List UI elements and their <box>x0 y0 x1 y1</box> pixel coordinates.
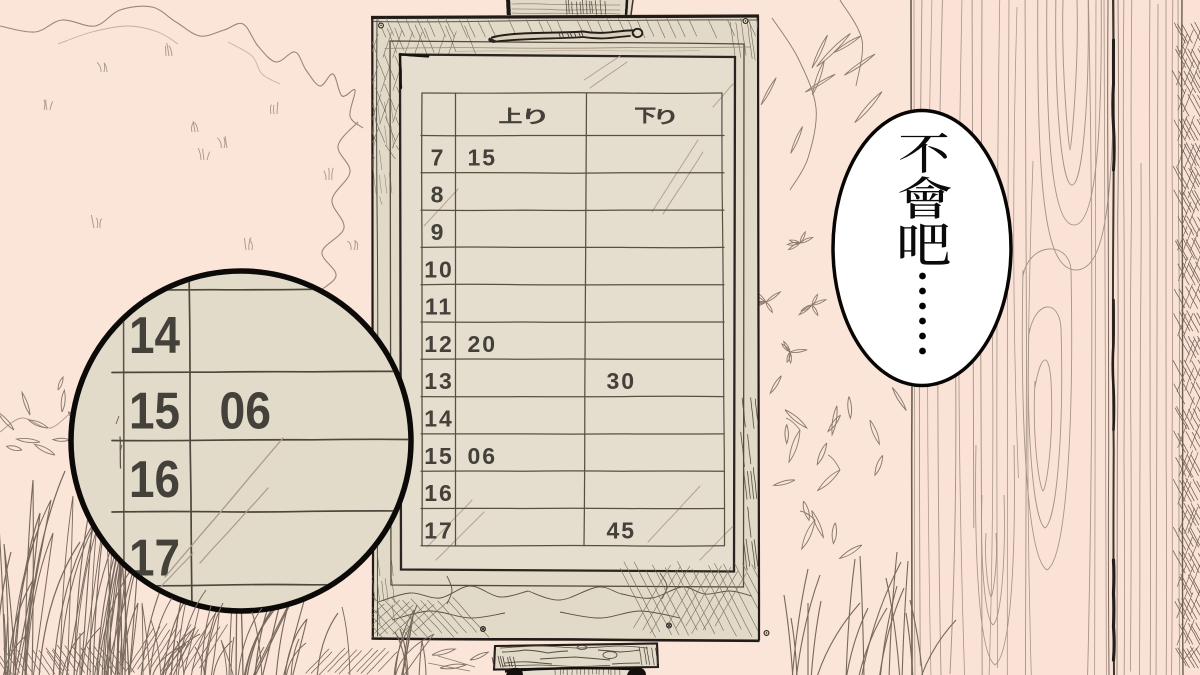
svg-text:12: 12 <box>424 331 454 357</box>
svg-text:14: 14 <box>424 406 454 432</box>
svg-text:17: 17 <box>424 517 454 543</box>
svg-text:30: 30 <box>607 368 637 394</box>
svg-text:20: 20 <box>468 331 498 357</box>
svg-text:16: 16 <box>129 451 180 509</box>
svg-text:13: 13 <box>424 368 454 394</box>
svg-text:14: 14 <box>129 307 180 365</box>
svg-text:15: 15 <box>468 144 498 170</box>
svg-text:15: 15 <box>424 443 454 469</box>
svg-text:16: 16 <box>424 480 454 506</box>
svg-text:45: 45 <box>607 517 637 543</box>
svg-text:10: 10 <box>424 256 454 282</box>
svg-text:9: 9 <box>431 219 446 245</box>
svg-text:11: 11 <box>425 294 453 320</box>
svg-text:8: 8 <box>431 182 446 208</box>
svg-text:06: 06 <box>220 383 272 441</box>
svg-text:15: 15 <box>129 383 180 441</box>
svg-text:06: 06 <box>468 443 498 469</box>
svg-text:7: 7 <box>431 144 446 170</box>
